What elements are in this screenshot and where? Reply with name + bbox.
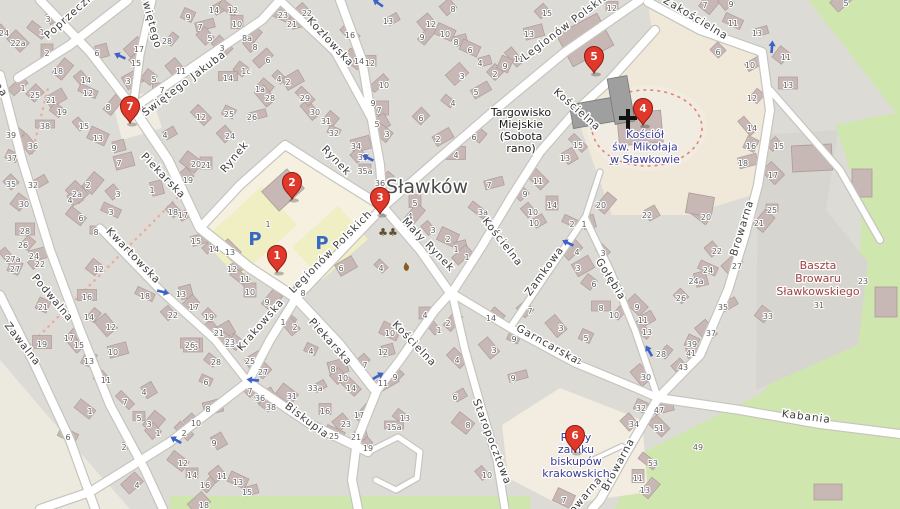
house-number: 8 [205,405,210,414]
house-number: 25 [329,432,339,441]
marker-number: 1 [273,250,280,262]
house-number: 1 [464,253,469,262]
house-number: 30 [310,108,320,117]
house-number: 13 [752,29,762,38]
house-number: 7 [197,23,202,32]
house-number: 24 [225,132,235,141]
house-number: 7 [122,398,127,407]
house-number: 2 [492,70,497,79]
house-number: 8 [453,38,458,47]
house-number: 13 [225,248,235,257]
trees-icon: ♣♣ [378,226,398,239]
house-number: 15 [74,341,84,350]
house-number: 10 [379,81,389,90]
house-number: 2 [44,49,49,58]
house-number: 5 [843,0,848,8]
house-number: 39 [6,131,16,140]
house-number: 23 [278,11,288,20]
house-number: 1 [20,84,25,93]
house-number: 17 [64,334,74,343]
house-number: 19 [363,444,373,453]
house-number: 9 [392,373,397,382]
house-number: 9 [510,374,515,383]
house-number: 21 [46,96,56,105]
house-number: 4 [378,264,383,273]
house-number: 15 [542,9,552,18]
house-number: 7 [486,181,491,190]
house-number: 2 [181,429,186,438]
house-number: 13 [783,81,793,90]
house-number: 21 [351,433,361,442]
house-number: 24 [703,266,713,275]
house-number: 18 [738,159,748,168]
marker-shadow [572,452,582,456]
house-number: 10 [529,219,539,228]
house-number: 27 [258,368,268,377]
church-cross-icon [619,116,637,120]
house-number: 12 [83,89,93,98]
house-number: 17 [354,411,364,420]
house-number: 35 [718,303,728,312]
house-number: 8a [242,34,252,43]
house-number: 10 [528,208,538,217]
house-number: 6 [591,280,596,289]
house-number: 1 [453,245,458,254]
house-number: 4 [574,248,579,257]
house-number: 11 [728,19,738,28]
house-number: 4 [454,356,459,365]
house-number: 14 [346,384,356,393]
house-number: 14 [486,314,496,323]
house-number: 12 [178,459,188,468]
house-number: 3 [430,226,435,235]
house-number: 14 [187,471,197,480]
house-number: 12 [227,265,237,274]
marker-shadow [591,73,601,77]
house-number: 37 [7,154,17,163]
marker-number: 2 [288,177,295,189]
house-number: 8 [598,304,603,313]
house-number: 6 [471,133,476,142]
house-number: 11 [638,316,648,325]
house-number: 4 [308,347,313,356]
house-number: 5 [151,75,156,84]
house-number: 24 [0,29,9,38]
house-number: 1a [255,85,265,94]
house-number: 25 [245,357,255,366]
house-number: 17 [178,211,188,220]
house-number: 10 [245,288,255,297]
house-number: 3 [115,190,120,199]
house-number: 1 [87,407,92,416]
house-number: 7 [561,496,566,505]
house-number: 41 [686,349,696,358]
house-number: 9 [634,303,639,312]
house-number: 26 [185,341,195,350]
house-number: 7 [247,387,252,396]
house-number: 9 [111,144,116,153]
house-number: 31 [287,392,297,401]
house-number: 5 [374,120,379,129]
house-number: 10 [108,348,118,357]
house-number: 35a [357,167,372,176]
house-number: 12 [196,113,206,122]
house-number: 1 [155,429,160,438]
house-number: 7 [702,1,707,10]
house-number: 4 [422,311,427,320]
house-number: 8 [93,228,98,237]
house-number: 10 [440,30,450,39]
house-number: 49 [693,443,703,452]
house-number: 16 [320,407,330,416]
house-number: 28 [656,350,666,359]
house-number: 22 [35,260,45,269]
house-number: 2 [435,135,440,144]
house-number: 18 [199,501,209,509]
house-number: 12 [378,348,388,357]
house-number: 8 [105,103,110,112]
house-number: 14 [747,124,757,133]
house-number: 19 [57,108,67,117]
house-number: 15 [242,488,252,497]
house-number: 8 [330,365,335,374]
house-number: 16 [345,31,355,40]
house-number: 21 [754,219,764,228]
house-number: 22a [10,39,25,48]
house-number: 34 [351,142,361,151]
house-number: 22 [642,211,652,220]
marker-shadow [640,125,650,129]
house-number: 1 [436,326,441,335]
house-number: 10 [482,471,492,480]
house-number: 1 [149,186,154,195]
city-label: Sławków [386,176,468,198]
house-number: 13 [524,30,534,39]
house-number: 16 [746,142,756,151]
house-number: 2 [85,181,90,190]
map-canvas[interactable]: Sławków PP♣♣≠ 2422a312181412617153572811… [0,0,900,509]
house-number: 10 [191,419,201,428]
house-number: 9 [728,0,733,9]
house-number: 6 [203,378,208,387]
house-number: 11 [101,376,111,385]
house-number: 13 [560,154,570,163]
house-number: 31 [814,301,824,310]
house-number: 5 [207,34,212,43]
house-number: 17 [768,171,778,180]
marker-number: 7 [126,101,133,113]
city-label-layer: Sławków [386,176,468,198]
house-number: 27 [732,262,742,271]
house-number: 13 [640,486,650,495]
house-number: 30 [19,200,29,209]
house-number: 19 [37,340,47,349]
house-number: 38 [40,122,50,131]
house-number: 6 [94,49,99,58]
house-number: 19 [204,313,214,322]
house-number: 25 [767,206,777,215]
house-number: 10 [232,20,242,29]
house-number: 8 [252,43,257,52]
house-number: 4 [141,388,146,397]
house-number: 10 [609,311,619,320]
house-number: 16 [82,293,92,302]
house-number: 12 [228,6,238,15]
house-number: 6 [65,433,70,442]
house-number: 3a [478,208,488,217]
house-number: 9 [511,335,516,344]
house-number: 8 [300,289,305,298]
house-number: 2 [569,220,574,229]
house-number: 8 [450,5,455,14]
house-number: 2 [292,323,297,332]
house-number: 32 [636,404,646,413]
house-number: 12 [607,4,617,13]
house-number: 5 [136,414,141,423]
house-number: 9 [502,62,507,71]
house-number: 47 [654,406,664,415]
house-number: 13 [93,134,103,143]
house-number: 9 [419,33,424,42]
house-number: 3 [384,130,389,139]
house-number: 3 [575,264,580,273]
house-number: 39 [687,340,697,349]
house-number: 6 [78,214,83,223]
house-number: 18 [168,208,178,217]
marker-number: 4 [639,103,646,115]
house-number: 23 [341,420,351,429]
house-number: 31 [321,117,331,126]
marker-shadow [289,199,299,203]
house-number: 10 [338,374,348,383]
house-number: 2 [285,78,290,87]
house-number: 9 [370,99,375,108]
house-number: 15 [79,122,89,131]
house-number: 20 [191,160,201,169]
house-number: 18 [140,292,150,301]
house-number: 12 [94,265,104,274]
house-number: 2 [445,319,450,328]
house-number: 4 [67,196,72,205]
house-number: 13 [383,17,393,26]
house-number: 13 [176,290,186,299]
house-number: 6 [338,264,343,273]
house-number: 12 [747,94,757,103]
house-number: 28 [211,358,221,367]
house-number: 6 [418,114,423,123]
house-number: 10 [745,61,755,70]
building-large [875,287,897,317]
house-number: 32 [329,129,339,138]
house-number: 36 [375,179,385,188]
house-number: 3 [108,208,113,217]
house-number: 14 [209,245,219,254]
house-number: 21 [38,303,48,312]
house-number: 20 [596,201,606,210]
house-number: 26 [676,294,686,303]
house-number: 9 [522,190,527,199]
house-number: 14 [547,201,557,210]
house-number: 25 [30,91,40,100]
house-number: 32 [28,181,38,190]
house-number: 15 [131,59,141,68]
house-number: 33 [763,312,773,321]
marker-number: 3 [376,192,383,204]
house-number: 11 [781,53,791,62]
house-number: 29 [300,94,310,103]
map-viewport[interactable]: Sławków PP♣♣≠ 2422a312181412617153572811… [0,0,900,509]
house-number: 3 [146,420,151,429]
marker-number: 5 [590,51,597,63]
house-number: 11 [240,275,250,284]
house-number: 14 [209,6,219,15]
house-number: 6 [452,393,457,402]
house-number: 21 [201,161,211,170]
building-large [814,484,842,500]
house-number: 1c [241,67,251,76]
marker-shadow [274,272,284,276]
house-number: 9 [211,439,216,448]
house-number: 2 [121,443,126,452]
house-number: 11 [217,472,227,481]
house-number: 15 [573,141,583,150]
house-number: 3 [459,72,464,81]
house-number: 53 [648,459,658,468]
parking-icon: P [248,229,261,250]
house-number: 6 [467,46,472,55]
marker-shadow [127,123,137,127]
house-number: 15 [774,142,784,151]
house-number: 12 [365,59,375,68]
house-number: 21 [214,329,224,338]
house-number: 6 [265,56,270,65]
house-number: 4 [477,59,482,68]
house-number: 38 [266,403,276,412]
house-number: 30 [641,373,651,382]
house-number: 37 [706,329,716,338]
house-number: 36 [255,394,265,403]
house-number: 3 [491,346,496,355]
house-number: 8 [465,421,470,430]
house-number: 27a [5,255,20,264]
house-number: 28 [20,227,30,236]
house-number: 14 [84,313,94,322]
house-number: 4 [276,75,281,84]
house-number: 12 [426,20,436,29]
house-number: 34 [629,420,639,429]
house-number: 3 [125,77,130,86]
house-number: 4 [450,99,455,108]
house-number: 17 [189,303,199,312]
house-number: 7 [527,307,532,316]
house-number: 1 [280,318,285,327]
house-number: 17 [134,45,144,54]
house-number: 13 [84,357,94,366]
house-number: 36 [28,142,38,151]
house-number: 5 [473,88,478,97]
landuse-green [170,496,530,509]
house-number: 15 [191,237,201,246]
house-number: 13 [642,328,652,337]
house-number: 21 [287,20,297,29]
house-number: 7 [376,106,381,115]
house-number: 25 [224,110,234,119]
house-number: 33a [307,384,322,393]
house-number: 22 [712,247,722,256]
house-number: 4 [134,481,139,490]
house-number: 5 [583,334,588,343]
house-number: 13 [400,414,410,423]
house-number: 6 [715,48,720,57]
house-number: 20 [701,213,711,222]
house-number: 26 [18,241,28,250]
house-number: 24a [688,277,703,286]
house-number: 1 [265,220,270,229]
house-number: 35 [6,180,16,189]
house-number: 4 [162,131,167,140]
marker-number: 6 [571,430,578,442]
house-number: 15a [386,423,401,432]
house-number: 5 [412,199,417,208]
house-number: 28 [265,94,275,103]
marker-shadow [377,214,387,218]
house-number: 9 [185,13,190,22]
house-number: 1 [581,220,586,229]
house-number: 11 [533,177,543,186]
house-number: 22 [168,311,178,320]
house-number: 7 [116,159,121,168]
house-number: 16 [200,481,210,490]
house-number: 7 [362,361,367,370]
house-number: 18 [53,67,63,76]
house-number: 19 [183,176,193,185]
house-number: 3 [558,324,563,333]
house-number: 51 [654,424,664,433]
house-number: 2a [72,190,82,199]
house-number: 11 [378,379,388,388]
house-number: 26 [247,113,257,122]
house-number: 11 [633,474,643,483]
house-number: 12 [106,323,116,332]
house-number: 13 [233,478,243,487]
house-number: 4 [453,151,458,160]
house-number: 3 [45,15,50,24]
house-number: 14 [81,76,91,85]
house-number: 27 [10,265,20,274]
house-number: 14 [223,74,233,83]
house-number: 2 [445,235,450,244]
house-number: 43 [678,363,688,372]
